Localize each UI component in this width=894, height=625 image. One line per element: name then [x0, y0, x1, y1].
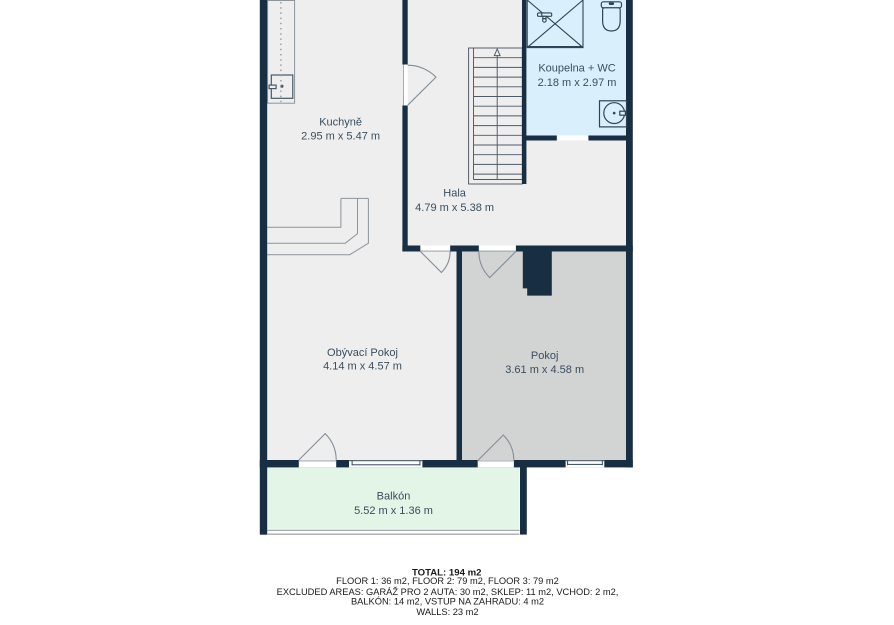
- svg-text:WALLS: 23 m2: WALLS: 23 m2: [416, 607, 478, 617]
- svg-text:5.52 m x 1.36 m: 5.52 m x 1.36 m: [354, 505, 433, 517]
- svg-text:Obývací Pokoj: Obývací Pokoj: [327, 347, 398, 359]
- svg-text:2.95 m x 5.47 m: 2.95 m x 5.47 m: [301, 131, 380, 143]
- svg-text:Hala: Hala: [443, 187, 467, 199]
- svg-text:4.14 m x 4.57 m: 4.14 m x 4.57 m: [323, 361, 402, 373]
- svg-text:4.79 m x 5.38 m: 4.79 m x 5.38 m: [415, 202, 494, 214]
- svg-text:Kuchyně: Kuchyně: [319, 116, 362, 128]
- svg-text:2.18 m x 2.97 m: 2.18 m x 2.97 m: [538, 77, 617, 89]
- svg-text:BALKÓN: 14 m2, VSTUP NA ZAHRAD: BALKÓN: 14 m2, VSTUP NA ZAHRADU: 4 m2: [351, 596, 544, 606]
- svg-text:FLOOR 1: 36 m2, FLOOR 2: 79 m2: FLOOR 1: 36 m2, FLOOR 2: 79 m2, FLOOR 3:…: [336, 576, 559, 586]
- svg-text:3.61 m x 4.58 m: 3.61 m x 4.58 m: [505, 364, 584, 376]
- svg-text:Koupelna + WC: Koupelna + WC: [538, 62, 615, 74]
- svg-text:Balkón: Balkón: [377, 491, 411, 503]
- svg-text:Pokoj: Pokoj: [531, 350, 559, 362]
